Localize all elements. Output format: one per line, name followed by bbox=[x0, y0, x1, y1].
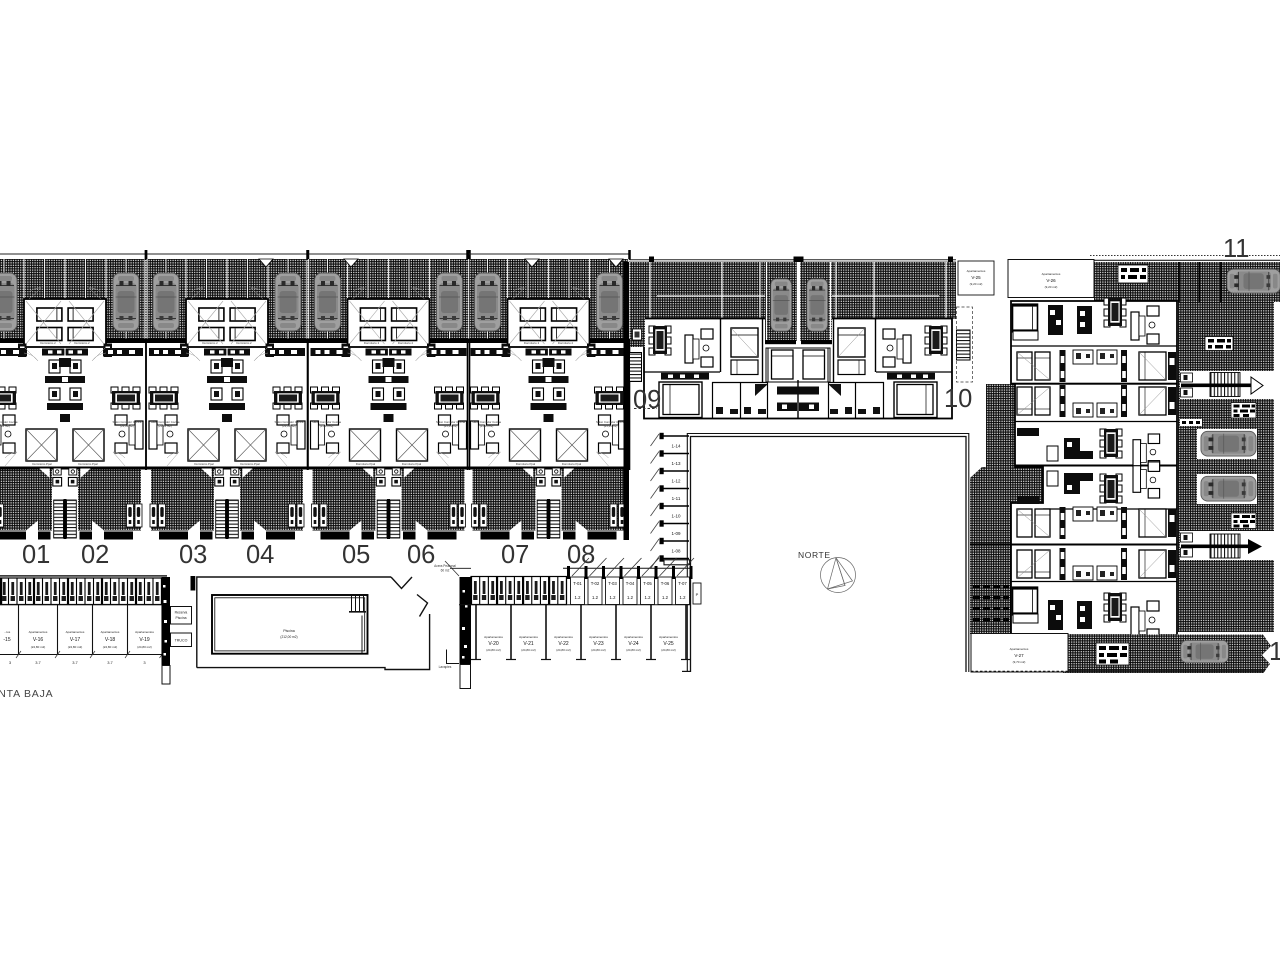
svg-text:T-06: T-06 bbox=[661, 581, 670, 586]
svg-text:...tos: ...tos bbox=[4, 630, 11, 634]
svg-text:(9,70 m2): (9,70 m2) bbox=[1013, 660, 1026, 664]
svg-text:Apartamentos: Apartamentos bbox=[101, 630, 120, 634]
svg-text:3.7: 3.7 bbox=[72, 660, 78, 665]
svg-text:Lavapies: Lavapies bbox=[439, 665, 452, 669]
svg-text:T-07: T-07 bbox=[678, 581, 687, 586]
svg-text:Acera Peatonal: Acera Peatonal bbox=[434, 564, 456, 568]
svg-text:(24,80 m2): (24,80 m2) bbox=[556, 648, 571, 652]
svg-text:3.7: 3.7 bbox=[35, 660, 41, 665]
svg-text:Apartamentos: Apartamentos bbox=[624, 635, 643, 639]
svg-text:1.2: 1.2 bbox=[610, 595, 617, 600]
svg-text:T-03: T-03 bbox=[608, 581, 617, 586]
svg-text:V-25: V-25 bbox=[663, 641, 674, 647]
svg-text:Apartamentos: Apartamentos bbox=[659, 635, 678, 639]
svg-text:11: 11 bbox=[1223, 235, 1249, 263]
svg-text:1-08: 1-08 bbox=[671, 549, 681, 554]
svg-text:(24,80 m2): (24,80 m2) bbox=[68, 645, 83, 649]
svg-text:(24,80 m2): (24,80 m2) bbox=[486, 648, 501, 652]
svg-text:06: 06 bbox=[407, 541, 435, 569]
svg-text:Apartamentos: Apartamentos bbox=[967, 269, 986, 273]
svg-text:10: 10 bbox=[944, 385, 972, 413]
svg-text:TRUCO: TRUCO bbox=[175, 639, 188, 643]
svg-text:(24,80 m2): (24,80 m2) bbox=[31, 645, 46, 649]
svg-text:1-09: 1-09 bbox=[671, 531, 681, 536]
svg-text:Apartamentos: Apartamentos bbox=[589, 635, 608, 639]
svg-text:V-16: V-16 bbox=[33, 637, 44, 643]
svg-text:(212,00 m2): (212,00 m2) bbox=[280, 635, 297, 639]
svg-text:NORTE: NORTE bbox=[798, 550, 831, 560]
svg-text:(24,80 m2): (24,80 m2) bbox=[626, 648, 641, 652]
svg-text:T-05: T-05 bbox=[643, 581, 652, 586]
svg-text:1-10: 1-10 bbox=[671, 514, 681, 519]
svg-text:02: 02 bbox=[81, 541, 109, 569]
svg-text:Apartamentos: Apartamentos bbox=[135, 630, 154, 634]
svg-text:03: 03 bbox=[179, 541, 207, 569]
svg-text:04: 04 bbox=[246, 541, 274, 569]
svg-text:3.7: 3.7 bbox=[107, 660, 113, 665]
svg-text:1.2: 1.2 bbox=[627, 595, 634, 600]
svg-text:1-14: 1-14 bbox=[671, 444, 681, 449]
svg-text:Apartamentos: Apartamentos bbox=[554, 635, 573, 639]
svg-text:07: 07 bbox=[501, 541, 529, 569]
svg-text:PLANTA BAJA: PLANTA BAJA bbox=[0, 688, 53, 700]
svg-text:V-20: V-20 bbox=[488, 641, 499, 647]
svg-text:V-27: V-27 bbox=[1014, 653, 1024, 658]
svg-text:(24,80 m2): (24,80 m2) bbox=[521, 648, 536, 652]
svg-text:1.2: 1.2 bbox=[662, 595, 669, 600]
svg-text:Apartamentos: Apartamentos bbox=[1042, 272, 1061, 276]
svg-text:(24,80 m2): (24,80 m2) bbox=[661, 648, 676, 652]
svg-text:1.2: 1.2 bbox=[575, 595, 582, 600]
svg-text:(9,20 m2): (9,20 m2) bbox=[970, 282, 983, 286]
svg-text:(24,80 m2): (24,80 m2) bbox=[591, 648, 606, 652]
svg-text:1-13: 1-13 bbox=[671, 461, 681, 466]
svg-text:-15: -15 bbox=[3, 637, 10, 643]
svg-text:P: P bbox=[696, 592, 699, 597]
svg-text:V-25: V-25 bbox=[971, 275, 981, 280]
svg-text:Piscina: Piscina bbox=[176, 616, 187, 620]
svg-text:Apartamentos: Apartamentos bbox=[484, 635, 503, 639]
svg-text:V-19: V-19 bbox=[139, 637, 150, 643]
svg-text:Apartamentos: Apartamentos bbox=[1010, 647, 1029, 651]
svg-text:(24,80 m2): (24,80 m2) bbox=[103, 645, 118, 649]
svg-text:V-23: V-23 bbox=[593, 641, 604, 647]
svg-text:1-11: 1-11 bbox=[672, 496, 681, 501]
svg-text:V-18: V-18 bbox=[105, 637, 116, 643]
svg-text:1.2: 1.2 bbox=[645, 595, 652, 600]
svg-text:Apartamentos: Apartamentos bbox=[66, 630, 85, 634]
svg-text:1.2: 1.2 bbox=[680, 595, 687, 600]
svg-text:1.2: 1.2 bbox=[592, 595, 599, 600]
svg-text:V-21: V-21 bbox=[523, 641, 534, 647]
svg-text:T-01: T-01 bbox=[573, 581, 582, 586]
svg-text:T-04: T-04 bbox=[626, 581, 635, 586]
svg-text:Apartamentos: Apartamentos bbox=[519, 635, 538, 639]
svg-text:09: 09 bbox=[633, 386, 661, 414]
svg-text:(24,80 m2): (24,80 m2) bbox=[137, 645, 152, 649]
svg-text:08: 08 bbox=[567, 541, 595, 569]
svg-text:05: 05 bbox=[342, 541, 370, 569]
svg-text:1-12: 1-12 bbox=[671, 479, 681, 484]
svg-text:Reserva: Reserva bbox=[175, 611, 188, 615]
svg-text:(9,20 m2): (9,20 m2) bbox=[1045, 285, 1058, 289]
svg-text:Piscina: Piscina bbox=[283, 629, 295, 633]
svg-text:V-22: V-22 bbox=[558, 641, 569, 647]
svg-text:01: 01 bbox=[22, 541, 50, 569]
svg-text:T-02: T-02 bbox=[591, 581, 600, 586]
svg-text:V-17: V-17 bbox=[70, 637, 81, 643]
svg-text:V-24: V-24 bbox=[628, 641, 639, 647]
svg-text:60 m2: 60 m2 bbox=[441, 569, 450, 573]
svg-text:1: 1 bbox=[1269, 638, 1280, 666]
svg-text:Apartamentos: Apartamentos bbox=[29, 630, 48, 634]
svg-text:V-26: V-26 bbox=[1046, 278, 1056, 283]
